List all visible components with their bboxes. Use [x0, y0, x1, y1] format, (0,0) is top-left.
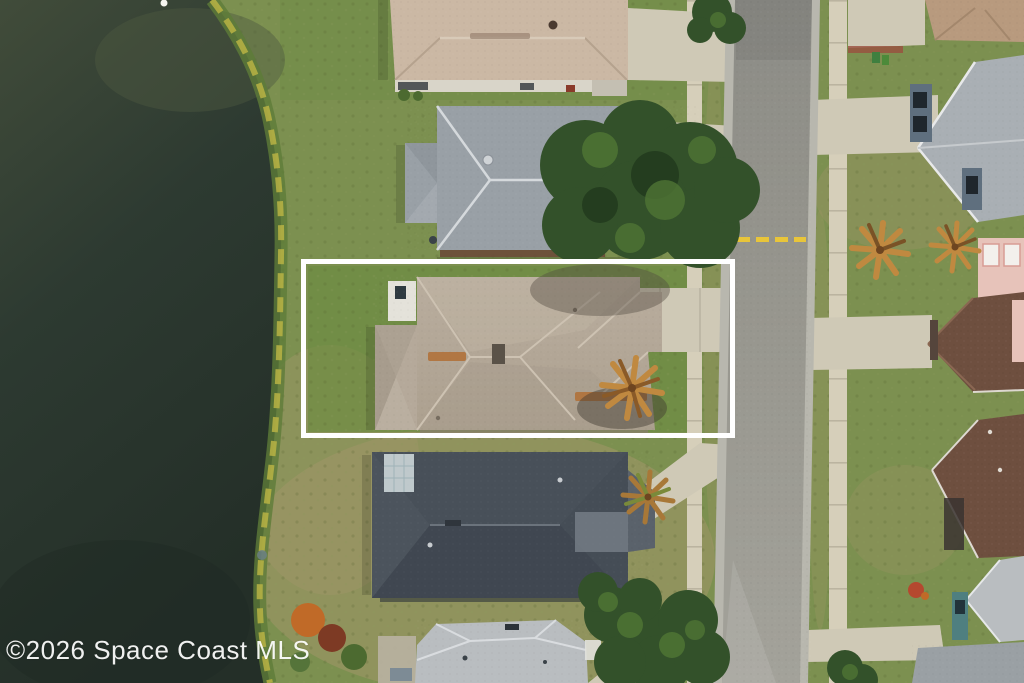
aerial-photo: ©2026 Space Coast MLS: [0, 0, 1024, 683]
street: [713, 0, 820, 683]
green-bush: [341, 644, 367, 670]
house-right-5-wall: [952, 592, 968, 640]
driveway-right-2: [810, 315, 932, 370]
tree-shadow: [530, 264, 670, 316]
ridge-vent: [492, 344, 505, 364]
subject-house: [366, 264, 670, 434]
red-bush: [318, 624, 346, 652]
roof-vent-strip: [428, 352, 466, 361]
pool-screen: [384, 454, 414, 492]
green-bin: [872, 52, 880, 63]
pond: [0, 0, 285, 683]
paver-border: [848, 46, 903, 53]
vehicle: [390, 668, 412, 681]
house-a: [378, 0, 628, 101]
aerial-photo-canvas: [0, 0, 1024, 683]
shore-debris: [257, 550, 267, 560]
garage-gable: [575, 512, 628, 552]
roof-vent: [549, 21, 558, 30]
roof-vent-strip: [470, 33, 530, 39]
driveway-right-top-corner: [848, 0, 925, 48]
watermark: ©2026 Space Coast MLS: [6, 636, 310, 665]
green-bin: [882, 55, 889, 65]
roof-vent: [483, 155, 493, 165]
porch: [944, 498, 964, 550]
grill: [566, 85, 575, 92]
garage-door: [930, 320, 938, 360]
